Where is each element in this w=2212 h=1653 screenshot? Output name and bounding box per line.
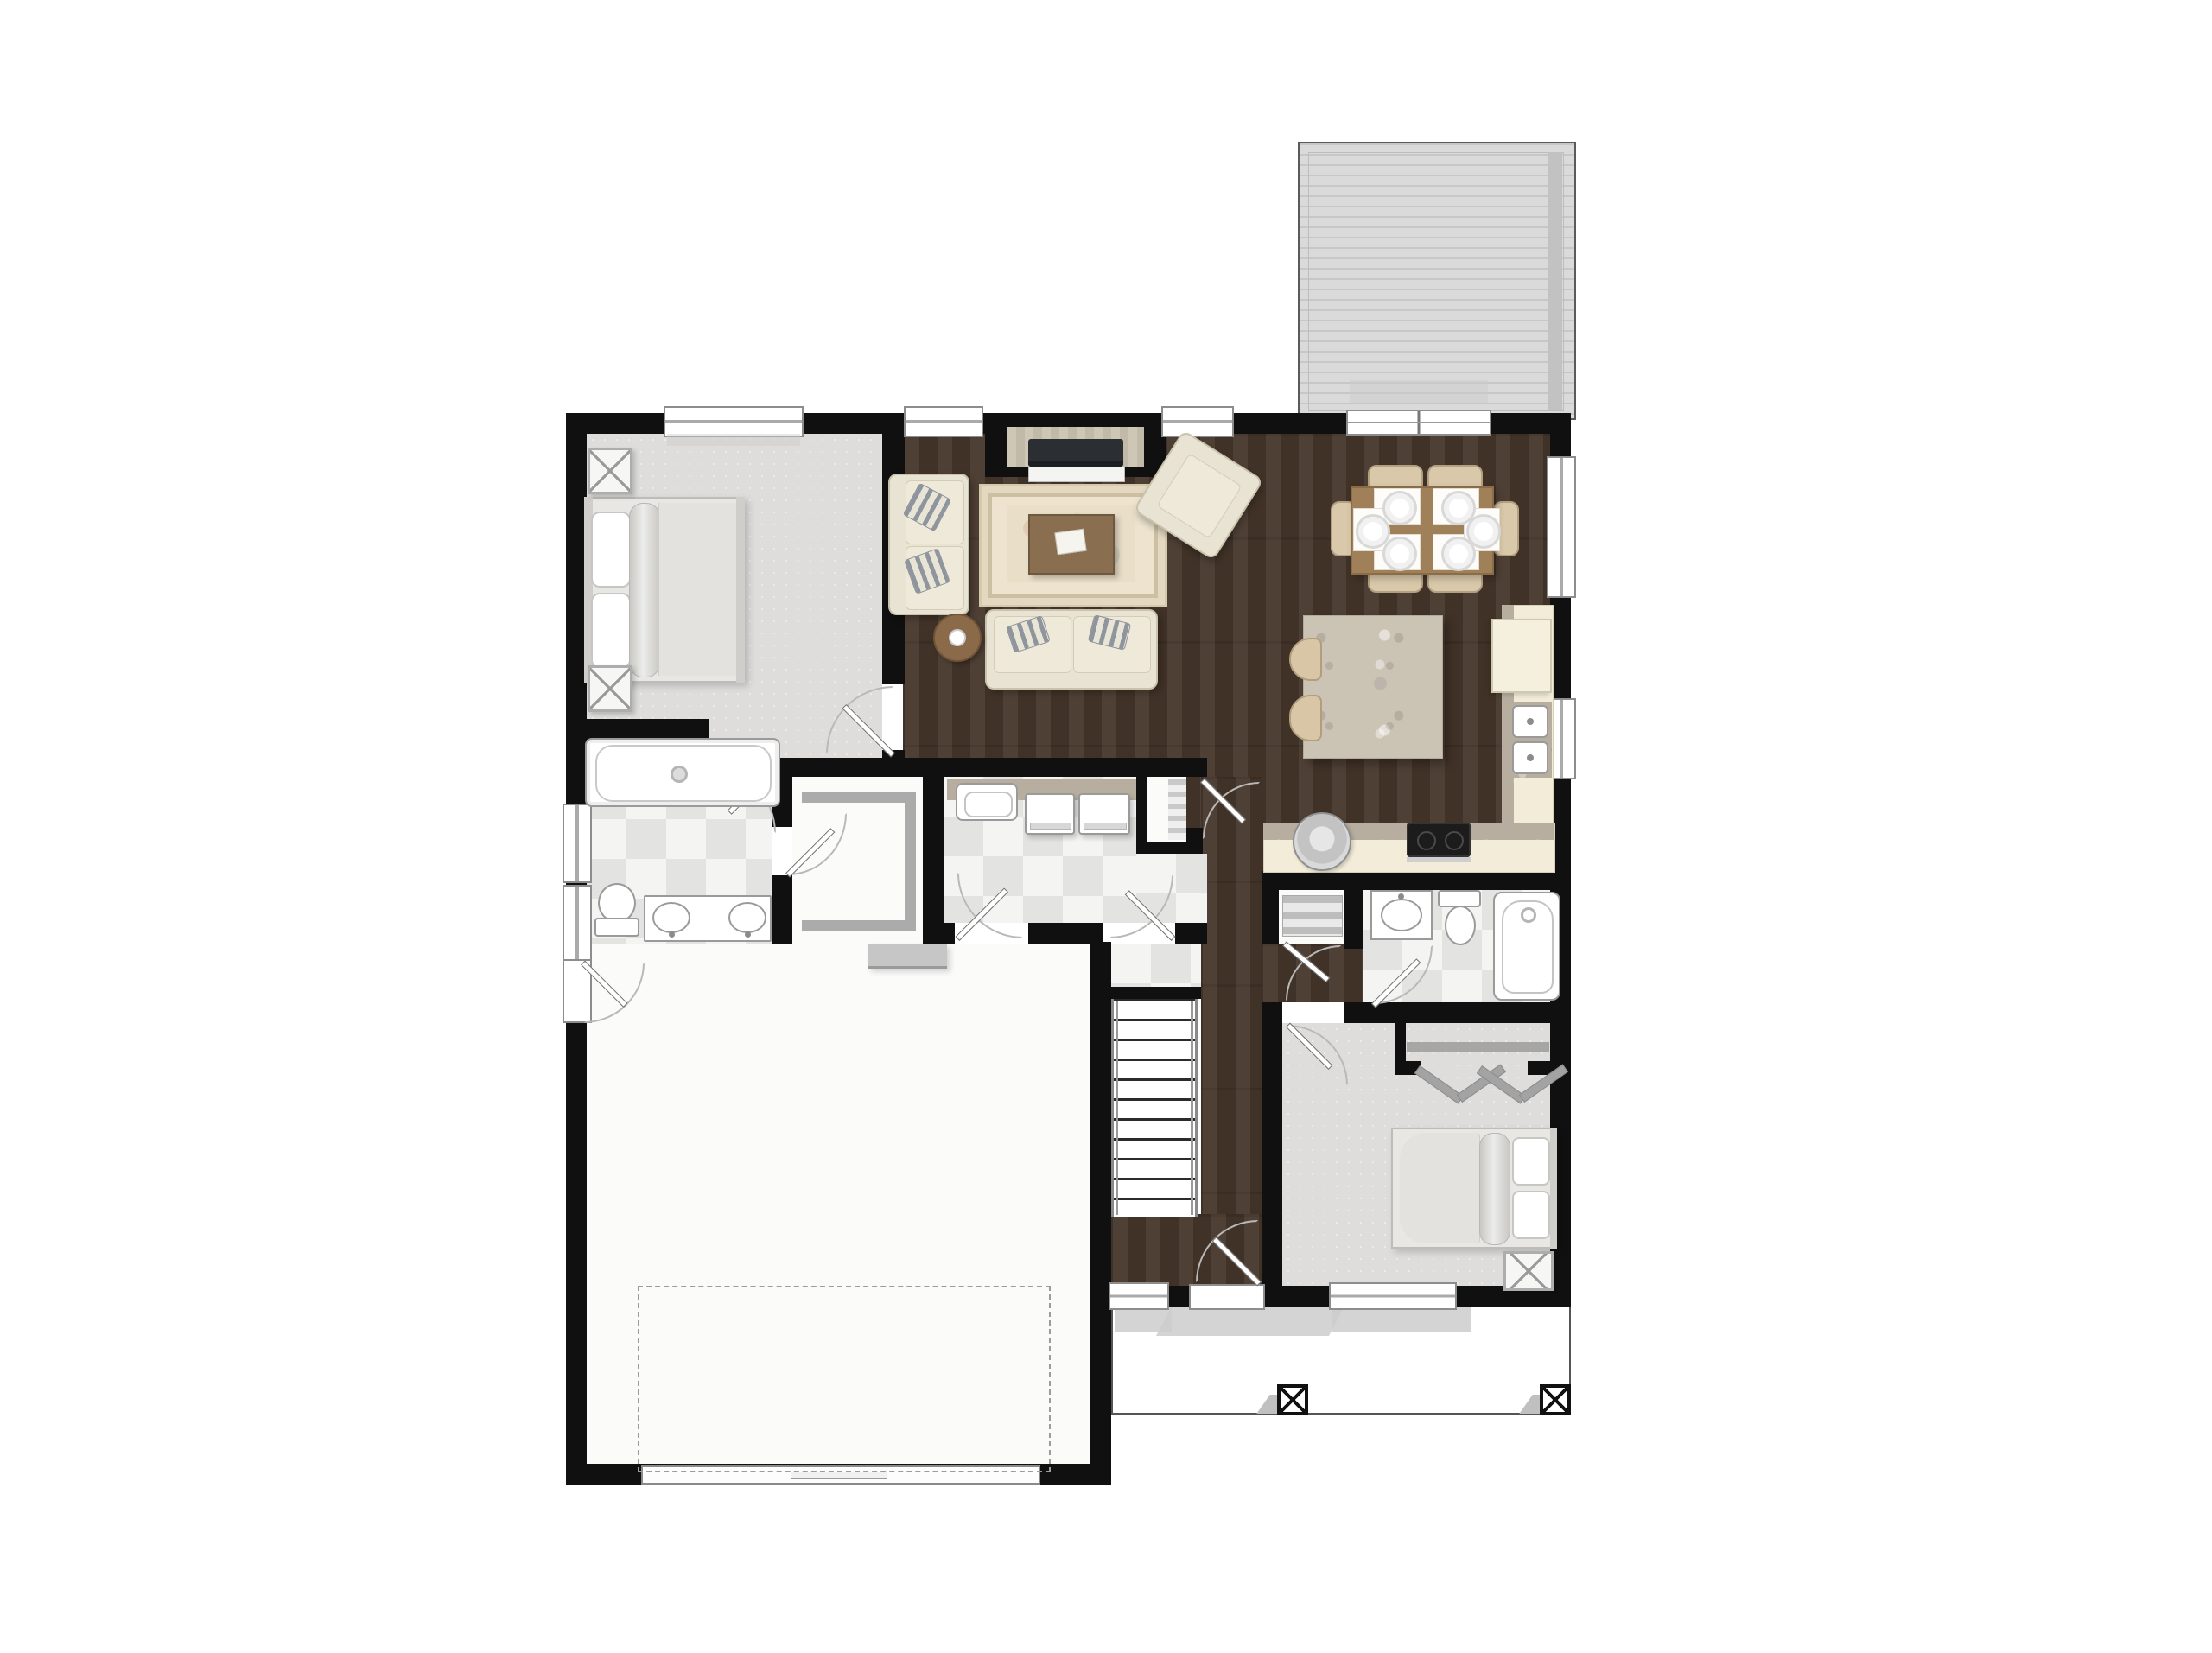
bed2-duvet [1400,1133,1480,1243]
garage-door-handle [791,1472,887,1479]
window-bath1-left-upper [563,804,592,883]
wall-laundry-bottom-c [1175,923,1207,944]
bed1-duvet [658,503,737,676]
fireplace-hearth [1028,467,1125,482]
porch-post-right-icon [1540,1384,1571,1415]
bedroom2-closet-rod [1407,1042,1549,1052]
sill-shadow-deck-door [1350,380,1488,403]
vanity2-sink [1381,899,1422,931]
refrigerator [1491,619,1552,693]
wall-bed2-top-b [1344,1002,1571,1023]
wall-laundry-bottom-b [1028,923,1103,944]
window-living-top-right [1161,406,1234,437]
window-dining-right [1547,456,1576,598]
bed2-headboard [1550,1128,1557,1249]
vanity1-faucet-right [745,931,751,938]
cooktop-burner-right [1445,831,1464,850]
island-stool-2 [1289,695,1322,741]
deck-inner-border [1308,152,1564,411]
staircase [1111,999,1198,1217]
wall-bed2-closet-stub [1395,1023,1406,1065]
plate-left [1356,514,1390,549]
kitchen-sink-drain-top [1527,718,1534,725]
bed1-pillow-bottom [591,593,631,669]
nightstand2-icon [1503,1251,1554,1291]
mudroom-floor [1111,944,1201,987]
bed1-footboard [736,497,745,683]
wall-bedroom1-bottom [776,758,1207,777]
porch-post-left-icon [1277,1384,1308,1415]
window-living-top-left [904,406,983,437]
vanity1-sink-left [652,902,690,933]
washer-door-line [1030,823,1071,830]
bed2-pillow-bottom [1512,1191,1550,1239]
sill-shadow-bedroom1 [667,434,800,446]
wall-garage-right [1090,942,1111,1485]
stair-rail-right [1191,1001,1193,1215]
vanity1-faucet-left [669,931,675,938]
corner-round-appliance [1293,812,1351,871]
vanity1-sink-right [728,902,766,933]
sliding-door-deck [1346,410,1491,436]
porch-door-shadow [1156,1307,1344,1336]
tub2-drain [1521,907,1536,923]
coffee-table-book [1054,529,1086,555]
bed2-bolster-roll [1479,1133,1510,1245]
garage-entry-step [868,944,947,969]
wall-bed2-top-a [1262,1002,1282,1023]
dryer-door-line [1084,823,1127,830]
stair-rail-left [1116,1001,1118,1215]
plate-right [1466,514,1501,549]
wall-pantry-right-stub [1186,828,1203,854]
garage-parking-outline [638,1286,1051,1472]
hall-hardwood [1201,777,1262,1217]
wall-bath2-block-top [1262,871,1571,890]
bed1-bolster-roll [629,503,660,677]
floor-plan [0,0,2212,1653]
window-bedroom2-bottom [1329,1282,1457,1310]
wall-linen-bath2 [1344,890,1363,949]
plate-top-1 [1382,491,1417,525]
toilet2-tank [1438,890,1481,907]
front-door-sill [1189,1284,1265,1310]
kitchen-sink-drain-bottom [1527,754,1534,761]
window-master-bedroom-top [664,406,804,437]
cooktop-front-trim [1407,857,1471,862]
bed2-pillow-top [1512,1137,1550,1186]
side-table-candle [949,629,966,646]
window-foyer-sidelite [1109,1282,1169,1310]
nightstand1-bottom-icon [588,665,632,712]
pantry-shelf [1168,779,1186,840]
vanity2-faucet [1398,893,1404,900]
toilet1-tank [594,918,639,937]
wall-linen-left [1262,890,1279,944]
deck-edge-strip [1548,152,1562,410]
window-bath1-left-lower [563,885,592,966]
linen-shelf [1282,895,1343,937]
toilet2-bowl [1445,906,1476,945]
wall-closet-laundry [923,777,944,944]
wall-bed2-left [1262,1023,1282,1286]
wall-bath1-closet-lower [772,875,792,944]
nightstand1-top-icon [588,448,632,494]
wall-laundry-bottom-a [944,923,955,944]
bed1-pillow-top [591,512,631,588]
cooktop-burner-left [1417,831,1436,850]
porch-window-shadow-right [1332,1307,1471,1332]
kitchen-island [1303,615,1443,759]
closet1-shelving [802,792,916,931]
wall-mudroom-stairs [1111,987,1201,999]
tv-icon [1028,439,1123,467]
master-tub-drain [671,766,688,783]
laundry-sink-basin [964,792,1013,817]
plate-bottom-1 [1382,537,1417,571]
